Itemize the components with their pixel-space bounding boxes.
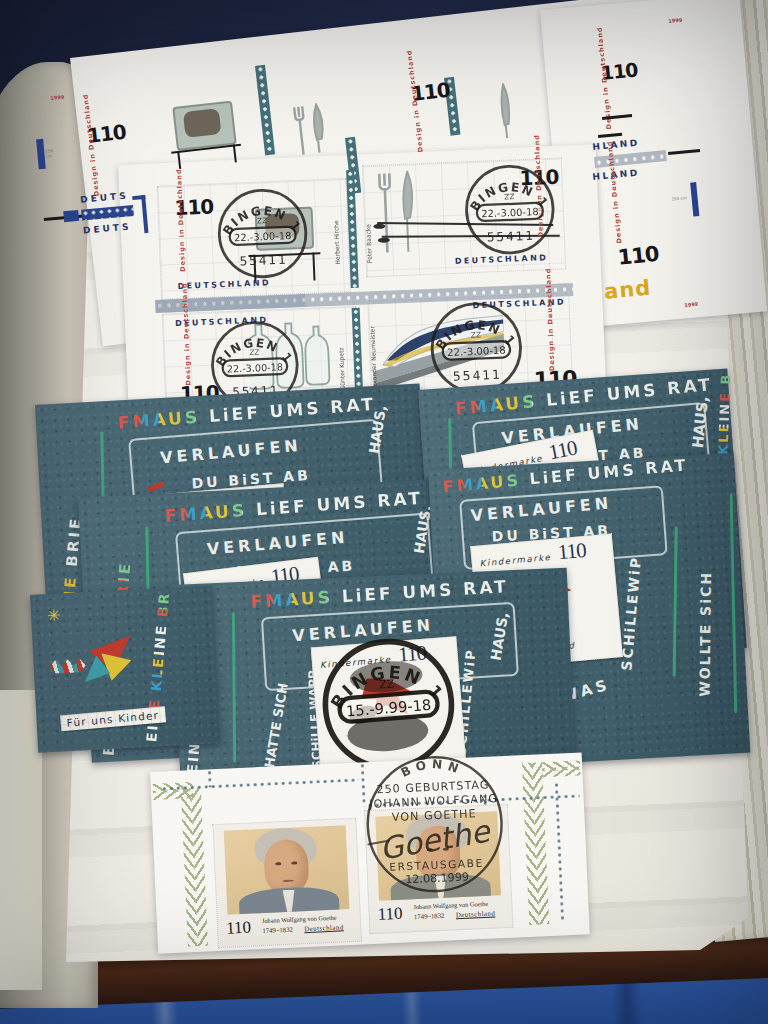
- laurel-border-right: [522, 762, 549, 925]
- story-line-vertical: WOLLTE SiCH: [696, 507, 715, 697]
- goethe-sheet: 110 Johann Wolfgang von Goethe 1749–1832…: [150, 752, 590, 953]
- design-stamp-block: 110 Design in Deutschland DEUTSCHLAND BI…: [150, 155, 577, 414]
- margin-and-label: and: [603, 275, 652, 303]
- denomination: 110: [377, 904, 403, 925]
- postmark-date: 22.-3.00-18: [227, 361, 284, 374]
- ruler-bar: [36, 139, 46, 169]
- postmark-date: 12.08.1999: [405, 870, 469, 886]
- postmark-letters: ZZ: [504, 192, 515, 201]
- design-label-110: 110 Design in Deutschland: [86, 122, 133, 197]
- tv-icon: [172, 101, 237, 152]
- goethe-country: Deutschland: [304, 923, 344, 932]
- margin-block: [63, 210, 79, 222]
- margin-word-partial: DEUTS: [83, 221, 132, 235]
- design-label-110: 110 Design in Deutschland: [410, 80, 456, 153]
- postmark-town: BONN: [398, 756, 465, 781]
- postmark-bingen: BINGEN 1 ZZ 22.-3.00-18 55411: [214, 185, 312, 283]
- fork-icon: [373, 171, 398, 256]
- goethe-country: Deutschland: [456, 909, 496, 918]
- postmark-letters: ZZ: [470, 330, 481, 339]
- tv-screen: [183, 108, 222, 138]
- perf-strip-blue: [81, 205, 134, 220]
- cutlery-fragment-icon: [288, 101, 334, 157]
- goethe-name: Johann Wolfgang von Goethe: [413, 900, 488, 910]
- postmark-date: 22.-3.00-18: [447, 345, 506, 358]
- stamp-text-row: 110 Johann Wolfgang von Goethe 1749–1832…: [226, 911, 355, 943]
- knife-icon: [399, 170, 418, 255]
- denomination: 110: [226, 918, 252, 939]
- ruler-bar: [690, 182, 699, 216]
- stamp-cutlery: 110 Design in Deutschland DEUTSCHLAND BI…: [362, 157, 566, 277]
- ruler-label: 250 cm: [671, 195, 686, 201]
- laurel-border-top-right: [542, 760, 581, 777]
- series-label: Design in Deutschland: [178, 224, 187, 272]
- margin-deuts-group: DEUTS DEUTS: [42, 189, 146, 246]
- postmark-date: 22.-3.00-18: [481, 206, 539, 219]
- postmark-bonn-fdc: BONN 250 GEBURTSTAG JOHANN WOLFGANG VON …: [355, 742, 514, 901]
- ruler-label: 250 cm: [45, 148, 58, 159]
- margin-ruler: 250 cm: [676, 179, 710, 222]
- perforation-dots: [206, 769, 212, 787]
- postmark-postcode: 55411: [486, 229, 535, 245]
- star-doodle: ✳: [47, 605, 61, 625]
- stamp-tv: 110 Design in Deutschland DEUTSCHLAND BI…: [157, 178, 351, 300]
- bird-zigzag: [49, 658, 90, 674]
- svg-text:BONN: BONN: [398, 756, 465, 781]
- stamp-value: 110: [547, 438, 578, 462]
- spine-page-sliver: [0, 690, 42, 990]
- denomination: 110: [617, 244, 660, 269]
- goethe-years: 1749–1832: [414, 912, 445, 920]
- tv-table-leg: [312, 252, 315, 280]
- goethe-stamp-mint: 110 Johann Wolfgang von Goethe 1749–1832…: [212, 818, 361, 948]
- kinder-sheet: EINE KLEINE BRIE ✳ Für uns Kinder: [30, 585, 220, 752]
- perforation-dots: [553, 782, 564, 922]
- laurel-border-left: [181, 788, 208, 947]
- stamp-label: Kindermarke: [479, 552, 551, 568]
- series-label: Design in Deutschland: [184, 341, 193, 385]
- stamp-text-row: 110 Johann Wolfgang von Goethe 1749–1832…: [377, 897, 506, 929]
- series-label: Design in Deutschland: [548, 327, 557, 371]
- tv-stamp-fragment: [166, 98, 243, 170]
- postmark-postcode: 55411: [453, 367, 503, 384]
- postmark-letters: ZZ: [379, 677, 396, 691]
- tv-table-leg: [177, 151, 181, 169]
- paper-bird-figure: [48, 633, 143, 700]
- stamp-album-photo: 110 Design in Deutschland 110 Design in …: [0, 0, 768, 1024]
- portrait-eye: [275, 862, 281, 865]
- stamp-value: 110: [557, 541, 586, 562]
- portrait-eye: [291, 861, 297, 864]
- postmark-letters: ZZ: [257, 216, 268, 225]
- margin-ruler: 250 cm: [30, 136, 59, 174]
- tv-table-leg: [233, 144, 237, 162]
- goethe-years: 1749–1832: [262, 926, 293, 934]
- postmark-letters: ZZ: [249, 348, 259, 357]
- postmark-bingen: BINGEN 1 ZZ 22.-3.00-18 55411: [461, 161, 559, 259]
- kinder-sheet-postmarked: FMAUS LiEF UMS RAT VERLAUFEN DU BiST AB …: [172, 568, 575, 775]
- postmark-date: 22.-3.00-18: [234, 230, 292, 243]
- goethe-portrait: [224, 825, 350, 914]
- postmark-postcode: 55411: [239, 253, 288, 269]
- goethe-name: Johann Wolfgang von Goethe: [262, 914, 337, 924]
- design-label-110: Design in Deutschland 110: [612, 194, 659, 269]
- perforation-dots: [161, 777, 359, 791]
